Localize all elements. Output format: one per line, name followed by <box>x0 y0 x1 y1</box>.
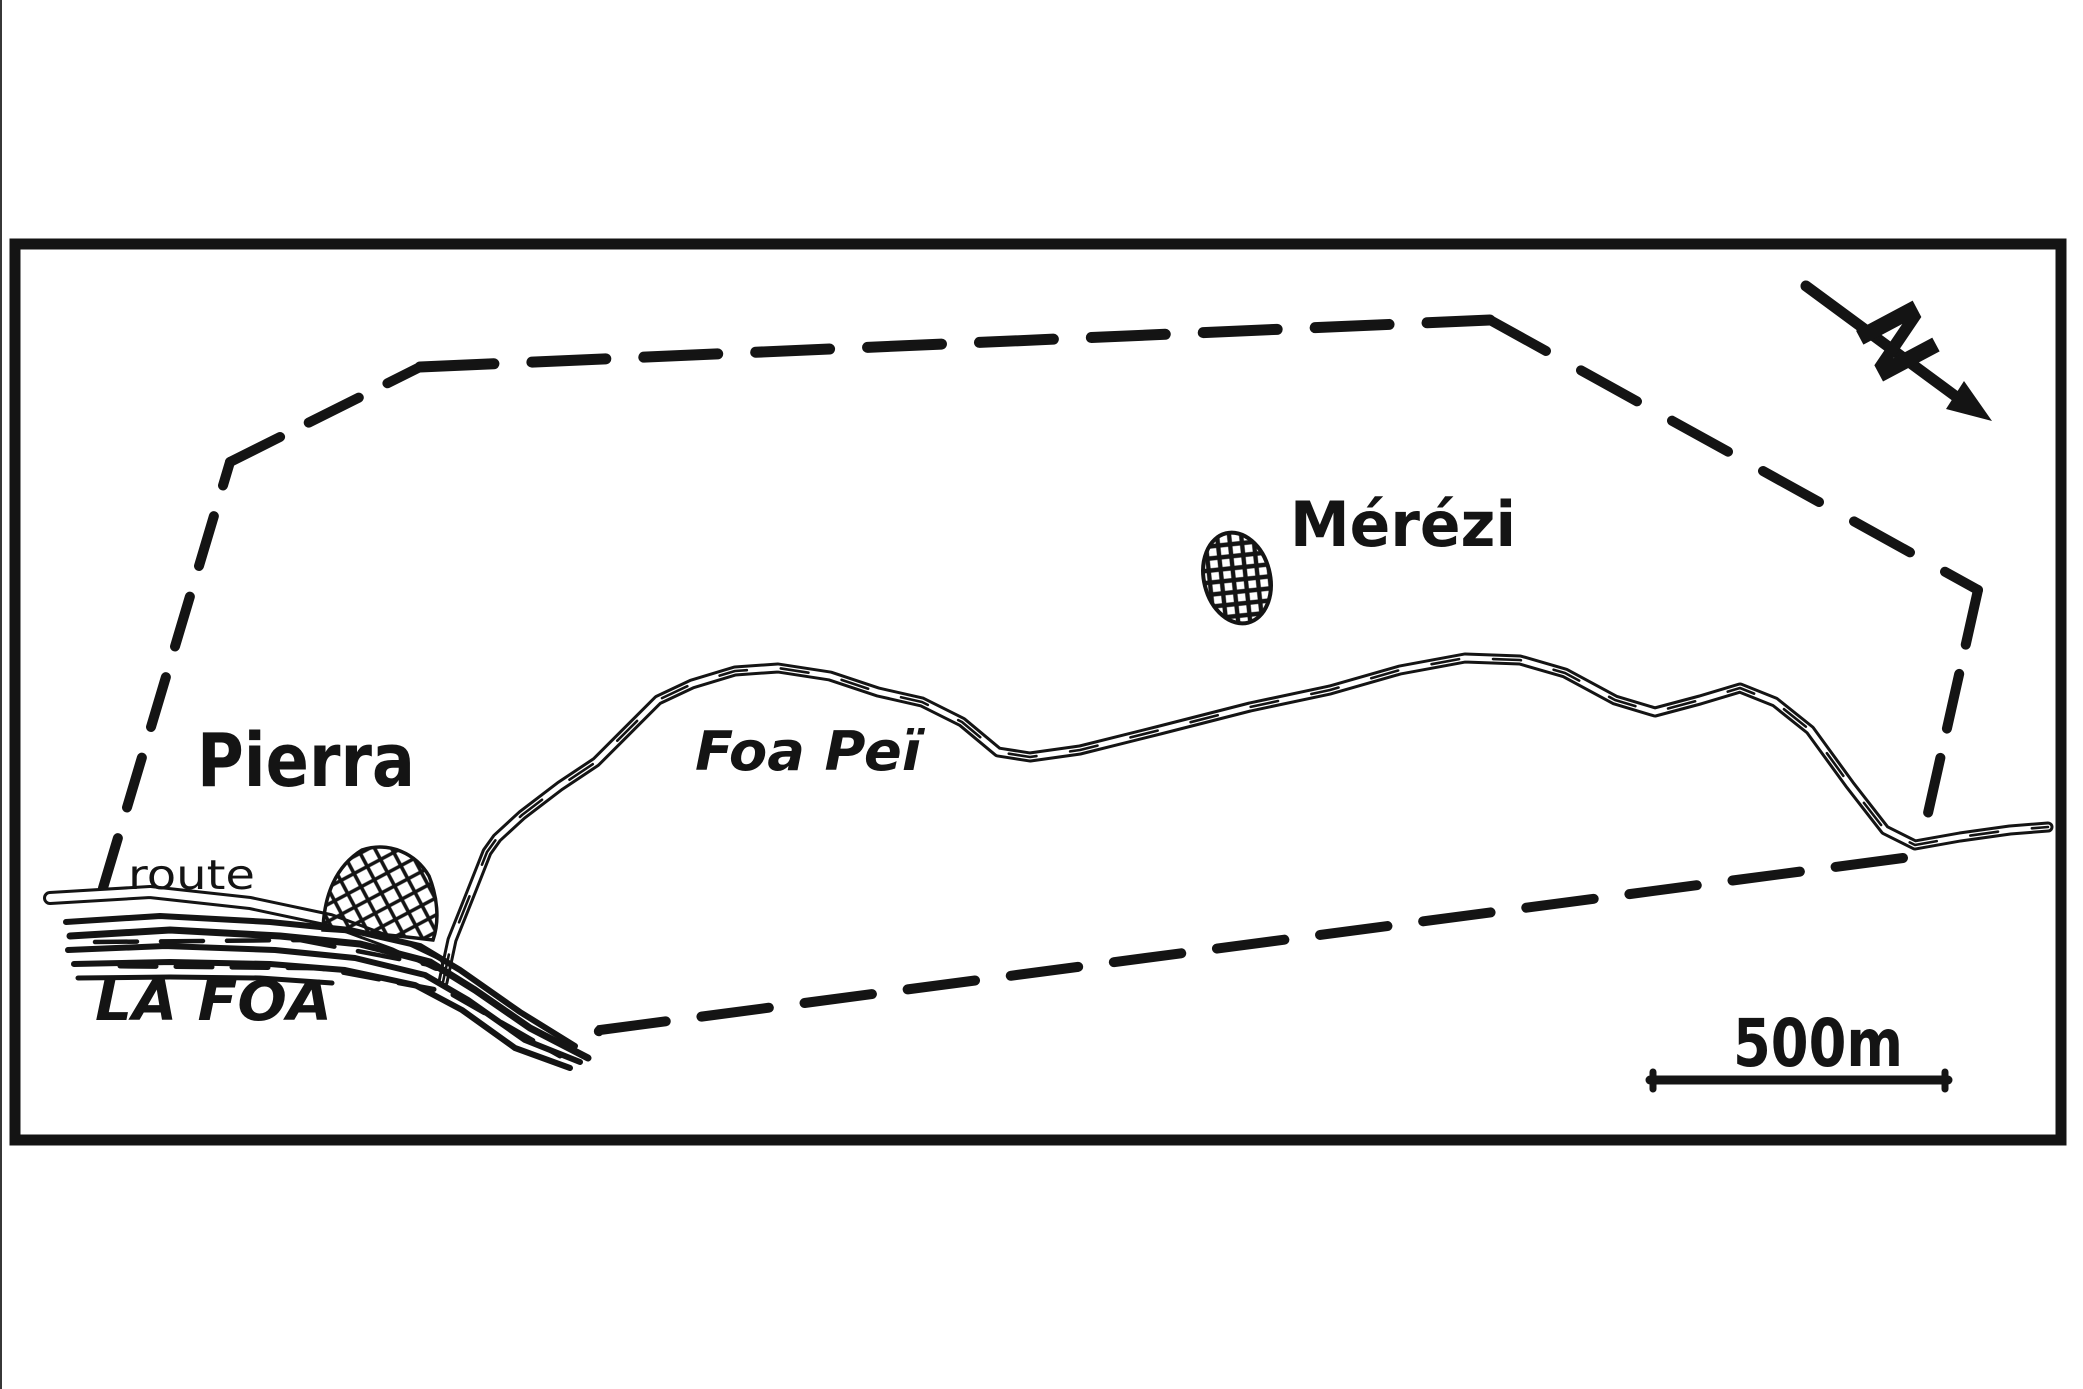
label-la-foa: LA FOA <box>95 969 332 1033</box>
boundary-right-edge <box>1926 590 1978 822</box>
label-foa-pei: Foa Peï <box>695 720 926 783</box>
north-arrow-icon: N <box>1806 285 1992 421</box>
foa-pei-stream <box>443 658 2048 982</box>
north-arrow-head <box>1946 381 1992 421</box>
sketch-map-page: N 500m Pierra Mérézi Foa Peï LA FOA rout… <box>0 0 2083 1389</box>
merezi-settlement-hatch <box>1194 525 1280 630</box>
scan-edge-line <box>0 0 2 1389</box>
stream-inner-white <box>443 658 2048 982</box>
boundary-bottom-edge <box>588 858 1903 1043</box>
boundary-top-edge <box>420 320 1490 367</box>
label-route: route <box>128 851 255 899</box>
scale-bar-label: 500m <box>1733 1005 1903 1082</box>
scale-bar: 500m <box>1650 1005 1948 1089</box>
boundary-topleft-edge <box>230 367 420 462</box>
map-canvas: N 500m Pierra Mérézi Foa Peï LA FOA rout… <box>0 0 2083 1389</box>
boundary-left-edge <box>103 462 230 888</box>
pierra-settlement-hatch <box>323 847 437 940</box>
label-merezi: Mérézi <box>1290 488 1516 561</box>
label-pierra: Pierra <box>197 718 415 804</box>
